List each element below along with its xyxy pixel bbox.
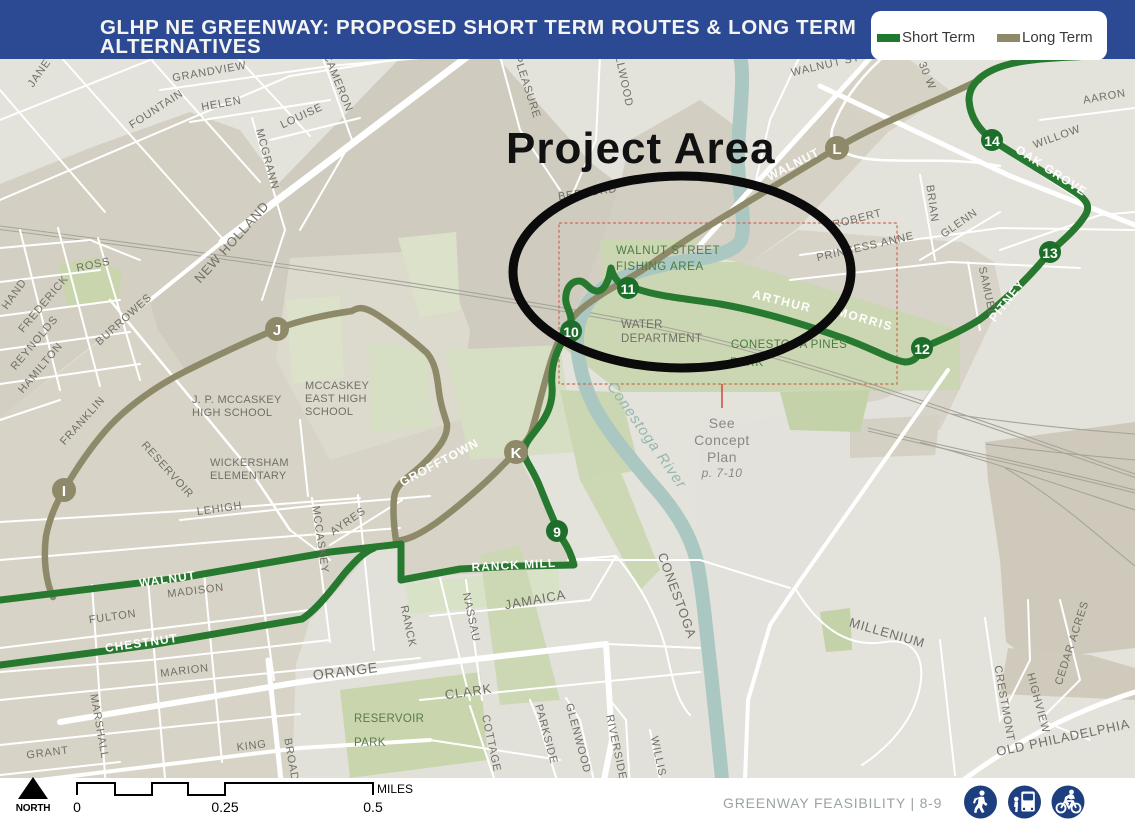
svg-text:Short Term: Short Term [902,29,975,46]
svg-text:WICKERSHAM: WICKERSHAM [210,457,289,469]
svg-text:ELEMENTARY: ELEMENTARY [210,470,287,482]
svg-text:See: See [709,415,735,431]
svg-text:DEPARTMENT: DEPARTMENT [621,333,702,345]
svg-text:13: 13 [1042,245,1058,261]
svg-text:ALTERNATIVES: ALTERNATIVES [100,35,261,58]
svg-text:0: 0 [73,799,81,815]
svg-text:SCHOOL: SCHOOL [305,406,353,418]
svg-text:14: 14 [984,133,1000,149]
svg-text:0.5: 0.5 [363,799,383,815]
svg-text:J: J [273,322,281,339]
svg-text:Project Area: Project Area [506,124,776,173]
svg-text:MCCASKEY: MCCASKEY [305,380,369,392]
svg-text:Concept: Concept [694,432,750,448]
svg-text:HIGH SCHOOL: HIGH SCHOOL [192,407,272,419]
svg-text:L: L [832,141,841,158]
svg-text:RESERVOIR: RESERVOIR [354,713,424,725]
svg-text:NORTH: NORTH [16,803,51,814]
svg-text:0.25: 0.25 [211,799,238,815]
svg-text:I: I [62,483,66,500]
svg-text:EAST HIGH: EAST HIGH [305,393,367,405]
svg-text:PARK: PARK [354,737,386,749]
svg-text:WALNUT STREET: WALNUT STREET [616,245,720,257]
svg-text:12: 12 [914,341,930,357]
svg-text:9: 9 [553,524,561,540]
svg-text:p. 7-10: p. 7-10 [701,466,743,480]
svg-text:11: 11 [621,281,636,297]
svg-text:J. P. MCCASKEY: J. P. MCCASKEY [192,394,282,406]
svg-text:MILES: MILES [377,782,413,796]
svg-text:K: K [511,445,522,462]
svg-text:FISHING AREA: FISHING AREA [616,261,704,273]
svg-text:Plan: Plan [707,449,737,465]
svg-text:WATER: WATER [621,319,663,331]
svg-text:Long Term: Long Term [1022,29,1093,46]
svg-text:GREENWAY FEASIBILITY | 8-9: GREENWAY FEASIBILITY | 8-9 [723,795,942,811]
